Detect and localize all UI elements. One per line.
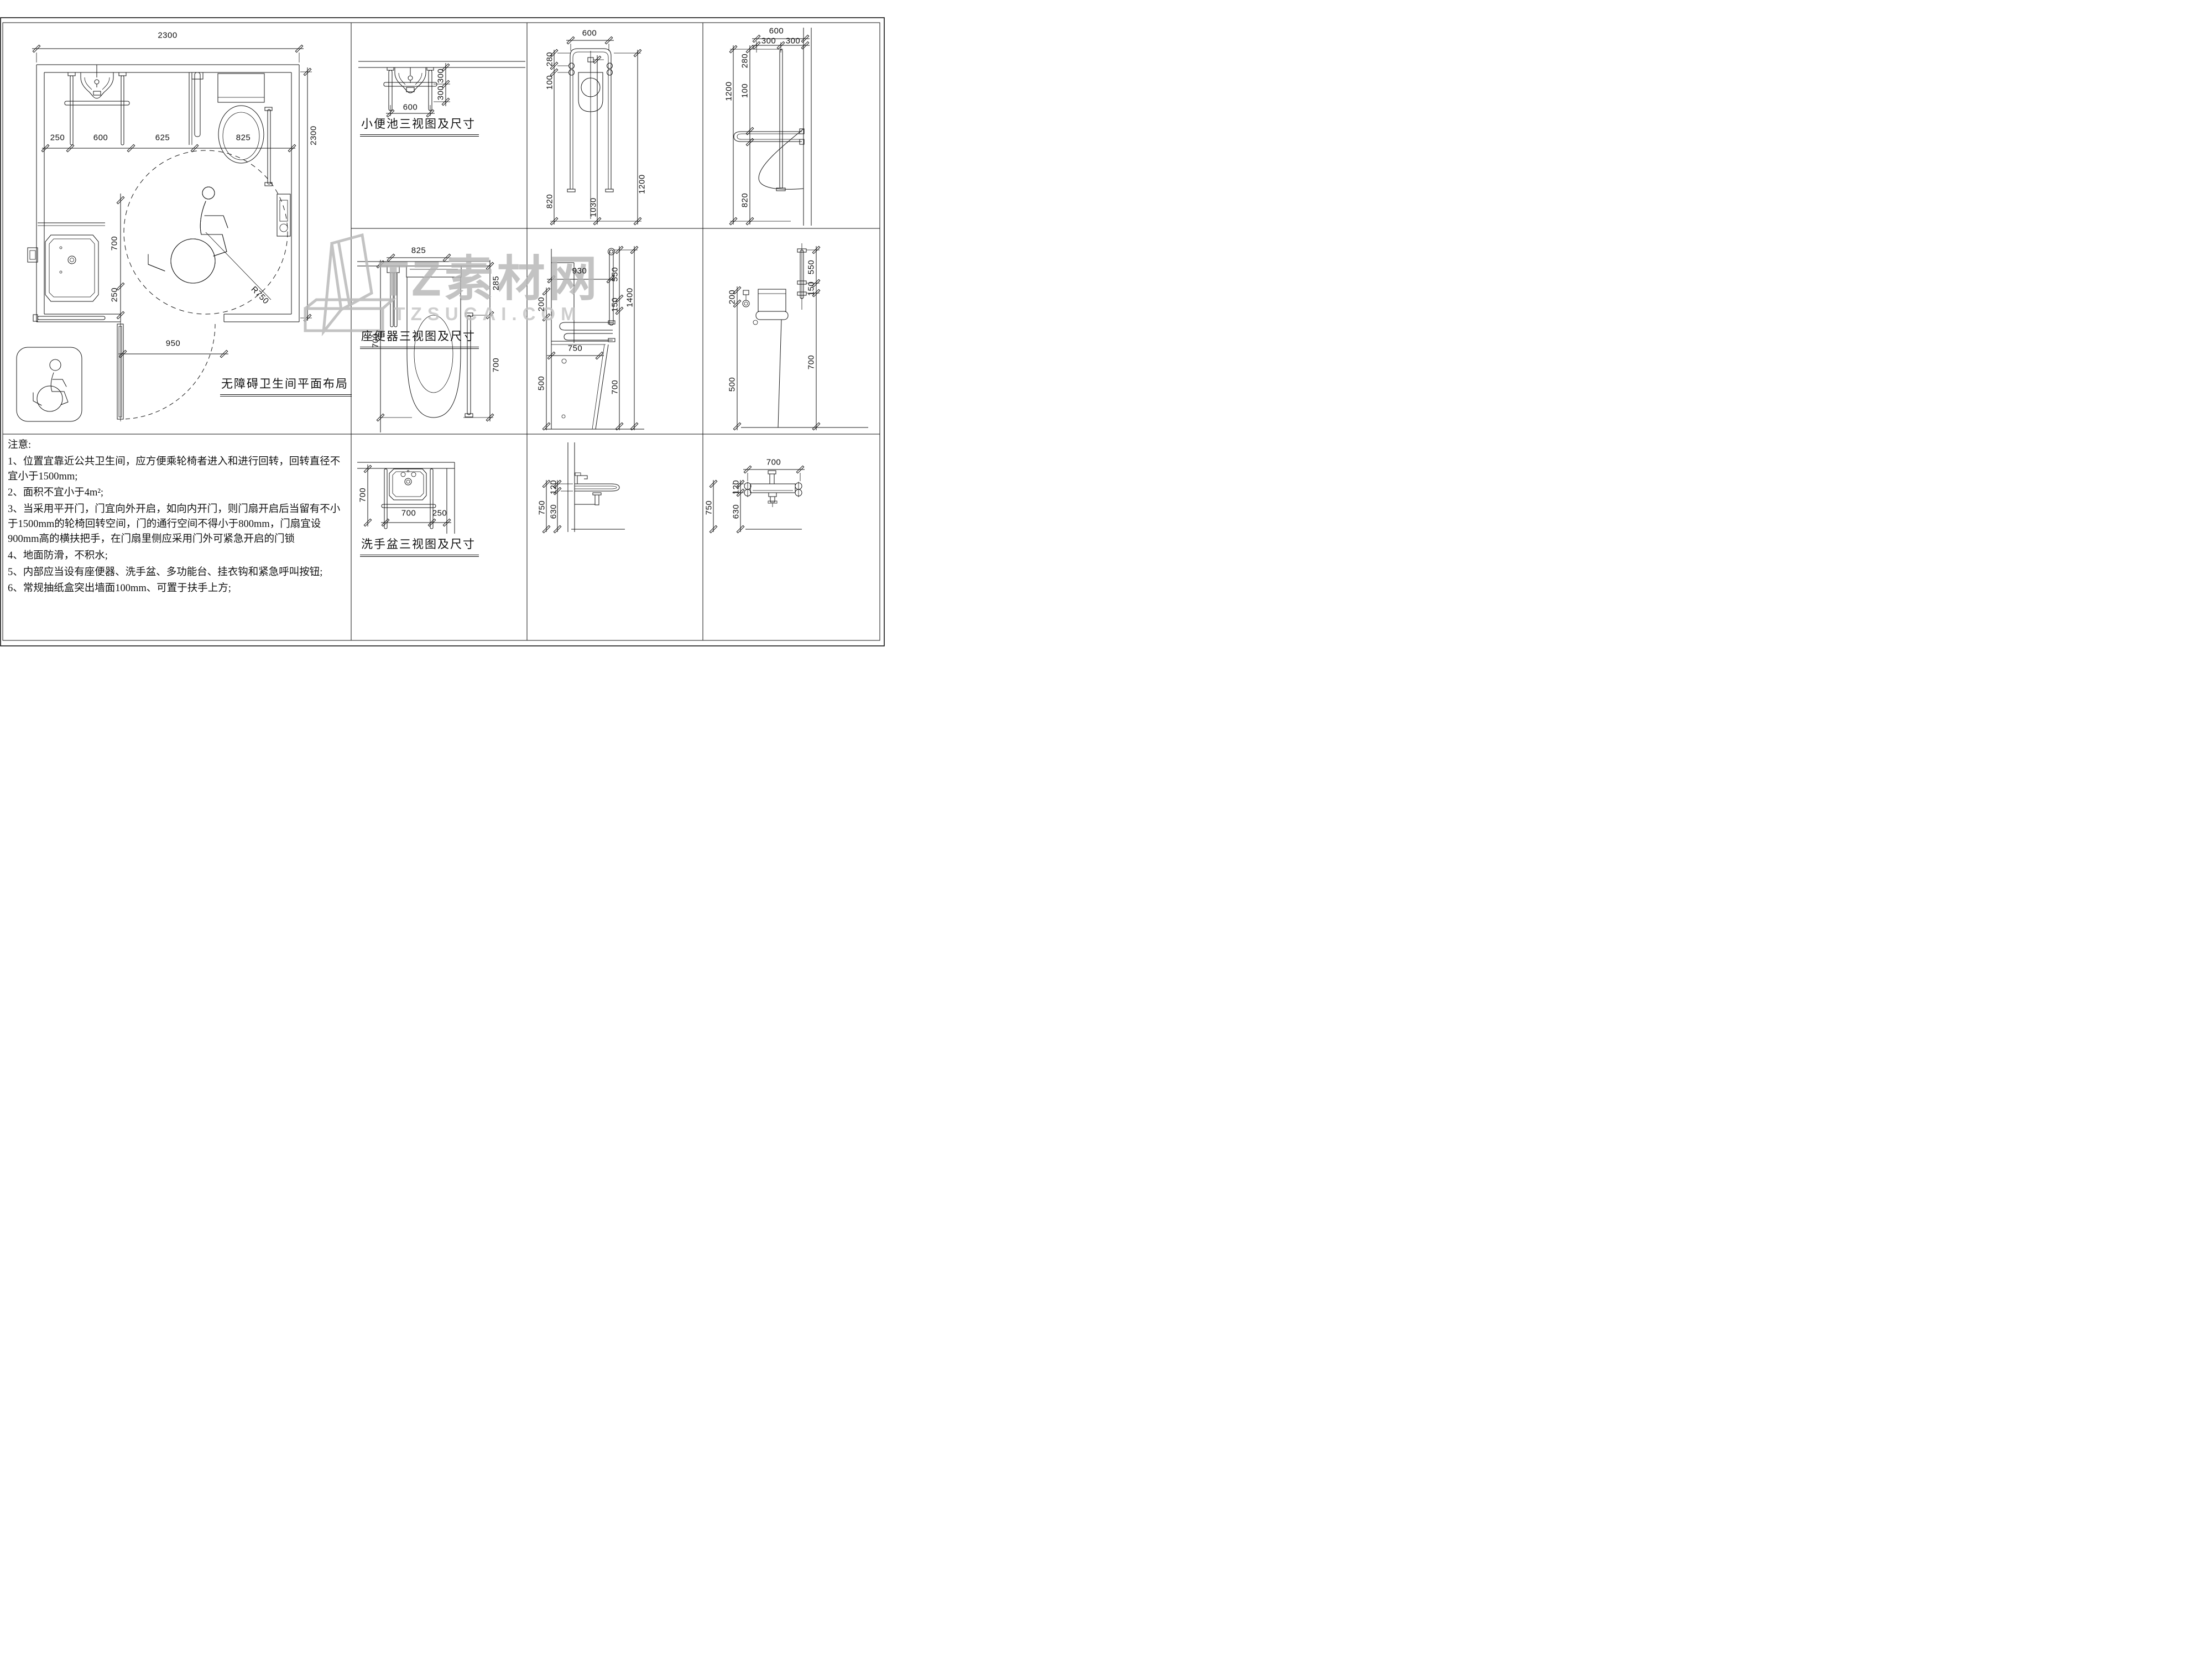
dim-label: 250: [110, 288, 119, 302]
dim-label: 100: [740, 84, 750, 98]
dim-label: 600: [582, 29, 597, 38]
dim-label: 630: [549, 504, 559, 519]
dim-label: 300: [436, 86, 446, 101]
dim-label: 700: [110, 236, 119, 251]
dim-label: 700: [358, 488, 368, 503]
note-item: 2、面积不宜小于4m²;: [8, 486, 347, 500]
dim-label: 550: [807, 260, 816, 275]
dim-label: 550: [611, 267, 620, 282]
dim-label: 600: [93, 133, 108, 143]
dim-label: 625: [155, 133, 170, 143]
dim-label: 750: [705, 500, 714, 515]
dim-label: 1400: [625, 288, 635, 307]
notes-block: 注意: 1、位置宜靠近公共卫生间，应方便乘轮椅者进入和进行回转，回转直径不宜小于…: [8, 438, 347, 598]
floor-plan-title: 无障碍卫生间平面布局: [220, 375, 352, 397]
basin-title: 洗手盆三视图及尺寸: [360, 535, 479, 557]
dim-label: 700: [492, 358, 501, 373]
dim-label: 500: [537, 376, 546, 391]
dim-label: 825: [236, 133, 251, 143]
dim-label: 700: [807, 355, 816, 370]
dim-label: 1200: [638, 174, 647, 194]
dim-label: 600: [403, 103, 418, 112]
dim-label: 2300: [309, 126, 319, 145]
toilet-front-drawing: [733, 243, 868, 430]
dim-label: 500: [728, 377, 737, 392]
dim-label: 250: [50, 133, 65, 143]
dim-label: 100: [545, 75, 555, 90]
note-item: 1、位置宜靠近公共卫生间，应方便乘轮椅者进入和进行回转，回转直径不宜小于1500…: [8, 455, 347, 484]
note-item: 5、内部应当设有座便器、洗手盆、多功能台、挂衣钩和紧急呼叫按钮;: [8, 565, 347, 580]
dim-label: 150: [807, 281, 816, 296]
dim-label: 1030: [589, 197, 598, 217]
dim-label: 825: [411, 246, 426, 255]
watermark-site: TZSUCAI.COM: [394, 304, 581, 325]
wheelchair-symbol: [148, 187, 228, 283]
dim-label: 200: [537, 297, 546, 312]
dim-label: 120: [549, 480, 559, 495]
dim-label: 700: [766, 458, 781, 467]
dim-label: 250: [432, 509, 447, 518]
dim-label: 820: [545, 194, 555, 209]
basin-front-drawing: [709, 466, 805, 533]
dim-label: 300: [786, 36, 801, 46]
basin-plan-drawing: [357, 462, 455, 534]
dim-label: 150: [611, 298, 620, 312]
dim-label: 280: [545, 52, 555, 67]
dim-label: 630: [732, 504, 741, 519]
note-item: 6、常规抽纸盒突出墙面100mm、可置于扶手上方;: [8, 581, 347, 596]
urinal-title: 小便池三视图及尺寸: [360, 115, 479, 137]
dim-label: 300: [436, 69, 446, 84]
dim-label: 700: [401, 509, 416, 518]
dim-label: 930: [572, 267, 587, 276]
dim-label: 750: [568, 344, 583, 353]
dim-label: 750: [538, 500, 547, 515]
dim-label: 950: [166, 339, 181, 348]
dim-label: 285: [492, 276, 501, 291]
cad-sheet: TZ素材网 TZSUCAI.COM 2300 250 600 625 825 7…: [0, 0, 885, 664]
dim-label: 200: [728, 290, 737, 305]
dim-label: 120: [732, 480, 741, 495]
floor-plan-drawing: [17, 45, 312, 421]
note-item: 4、地面防滑，不积水;: [8, 549, 347, 564]
dim-label: 300: [761, 36, 776, 46]
dim-label: 2300: [158, 31, 177, 40]
dim-label: 280: [740, 54, 750, 69]
dim-label: 1200: [724, 81, 734, 101]
urinal-front-drawing: [550, 36, 641, 225]
notes-title: 注意:: [8, 438, 347, 453]
toilet-title: 座便器三视图及尺寸: [360, 327, 479, 349]
accessible-icon: [17, 347, 82, 421]
dim-label: 600: [769, 27, 784, 36]
dim-label: 700: [611, 380, 620, 395]
note-item: 3、当采用平开门，门宜向外开启，如向内开门，则门扇开启后当留有不小于1500mm…: [8, 502, 347, 546]
dim-label: 820: [740, 193, 750, 208]
